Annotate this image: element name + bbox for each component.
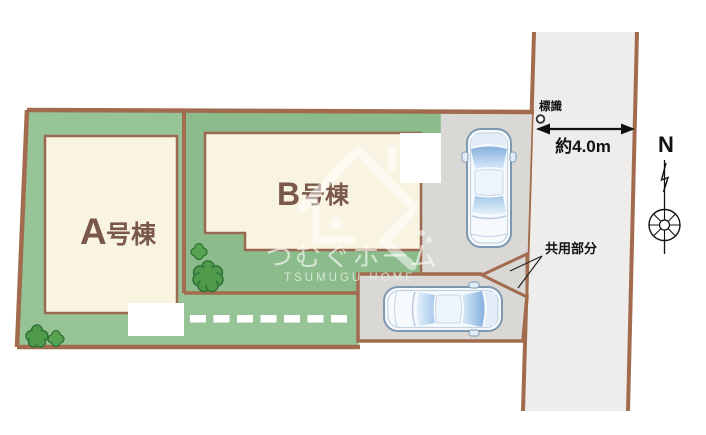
sign-marker-icon	[537, 115, 545, 123]
plot-b: B号棟	[205, 133, 441, 250]
road-surface	[523, 32, 637, 411]
road	[523, 32, 637, 411]
building-a-porch	[128, 303, 184, 336]
site-plan-svg: A号棟 B号棟 標識 約4.0m	[0, 0, 706, 435]
plot-a: A号棟	[45, 136, 184, 336]
site-top-boundary	[27, 110, 534, 112]
site-plan-page: A号棟 B号棟 標識 約4.0m	[0, 0, 706, 435]
common-area-label: 共用部分	[545, 241, 597, 256]
car-top-view-vertical	[462, 129, 516, 247]
building-b-label: B号棟	[277, 176, 350, 212]
compass-north-label: N	[658, 132, 674, 157]
road-width-label: 約4.0m	[555, 136, 611, 156]
car-top-view-horizontal	[384, 282, 502, 336]
compass: N	[649, 132, 680, 254]
sign-label: 標識	[539, 99, 562, 113]
compass-rose-icon	[649, 210, 680, 241]
building-b-annex	[400, 133, 441, 183]
driveway-dashed-line	[190, 315, 347, 323]
